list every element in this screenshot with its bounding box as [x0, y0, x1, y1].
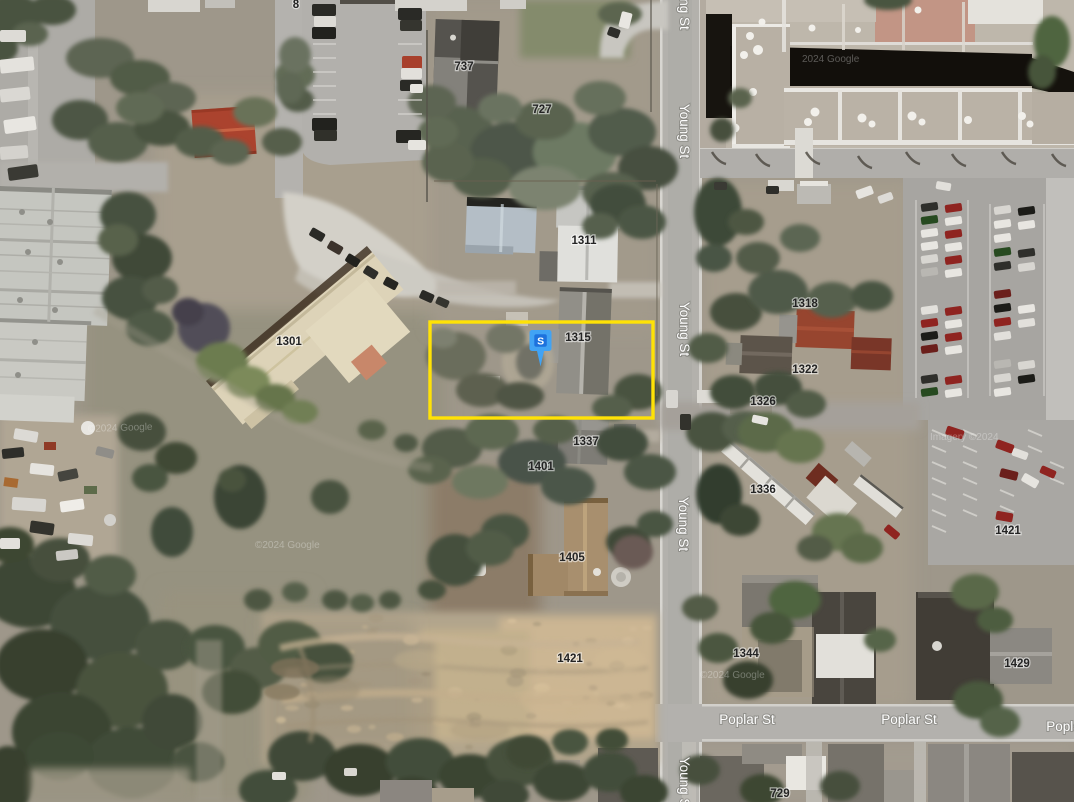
svg-text:1337: 1337 [573, 436, 599, 448]
svg-text:2024 Google: 2024 Google [802, 54, 860, 65]
svg-text:1326: 1326 [750, 396, 776, 408]
svg-text:1322: 1322 [792, 364, 818, 376]
svg-text:Young St: Young St [676, 497, 691, 552]
svg-text:Poplar St: Poplar St [719, 712, 775, 727]
svg-text:1344: 1344 [733, 648, 759, 660]
svg-text:1421: 1421 [557, 653, 583, 665]
svg-text:ng St: ng St [677, 0, 692, 30]
svg-text:1421: 1421 [995, 525, 1021, 537]
svg-text:1318: 1318 [792, 298, 818, 310]
svg-text:8: 8 [293, 0, 300, 11]
svg-text:1401: 1401 [528, 461, 554, 473]
svg-text:1336: 1336 [750, 484, 776, 496]
svg-text:1311: 1311 [572, 235, 598, 247]
svg-text:1405: 1405 [559, 552, 585, 564]
svg-text:©2024 Google: ©2024 Google [700, 670, 765, 681]
svg-text:©2024 Google: ©2024 Google [88, 422, 153, 435]
svg-text:1429: 1429 [1004, 658, 1030, 670]
svg-text:S: S [537, 336, 544, 348]
svg-text:Imagery ©2024: Imagery ©2024 [930, 432, 999, 443]
svg-text:Young St: Young St [677, 104, 692, 159]
svg-text:Poplar St: Poplar St [881, 712, 937, 727]
svg-text:727: 727 [532, 104, 551, 116]
svg-text:Young St: Young St [677, 757, 692, 802]
svg-text:737: 737 [454, 61, 473, 73]
svg-text:©2024 Google: ©2024 Google [255, 540, 320, 551]
svg-text:Poplar St: Poplar St [1046, 719, 1074, 734]
svg-text:729: 729 [770, 788, 789, 800]
svg-text:1315: 1315 [565, 332, 591, 344]
svg-text:Young St: Young St [677, 302, 692, 357]
svg-text:1301: 1301 [276, 336, 302, 348]
